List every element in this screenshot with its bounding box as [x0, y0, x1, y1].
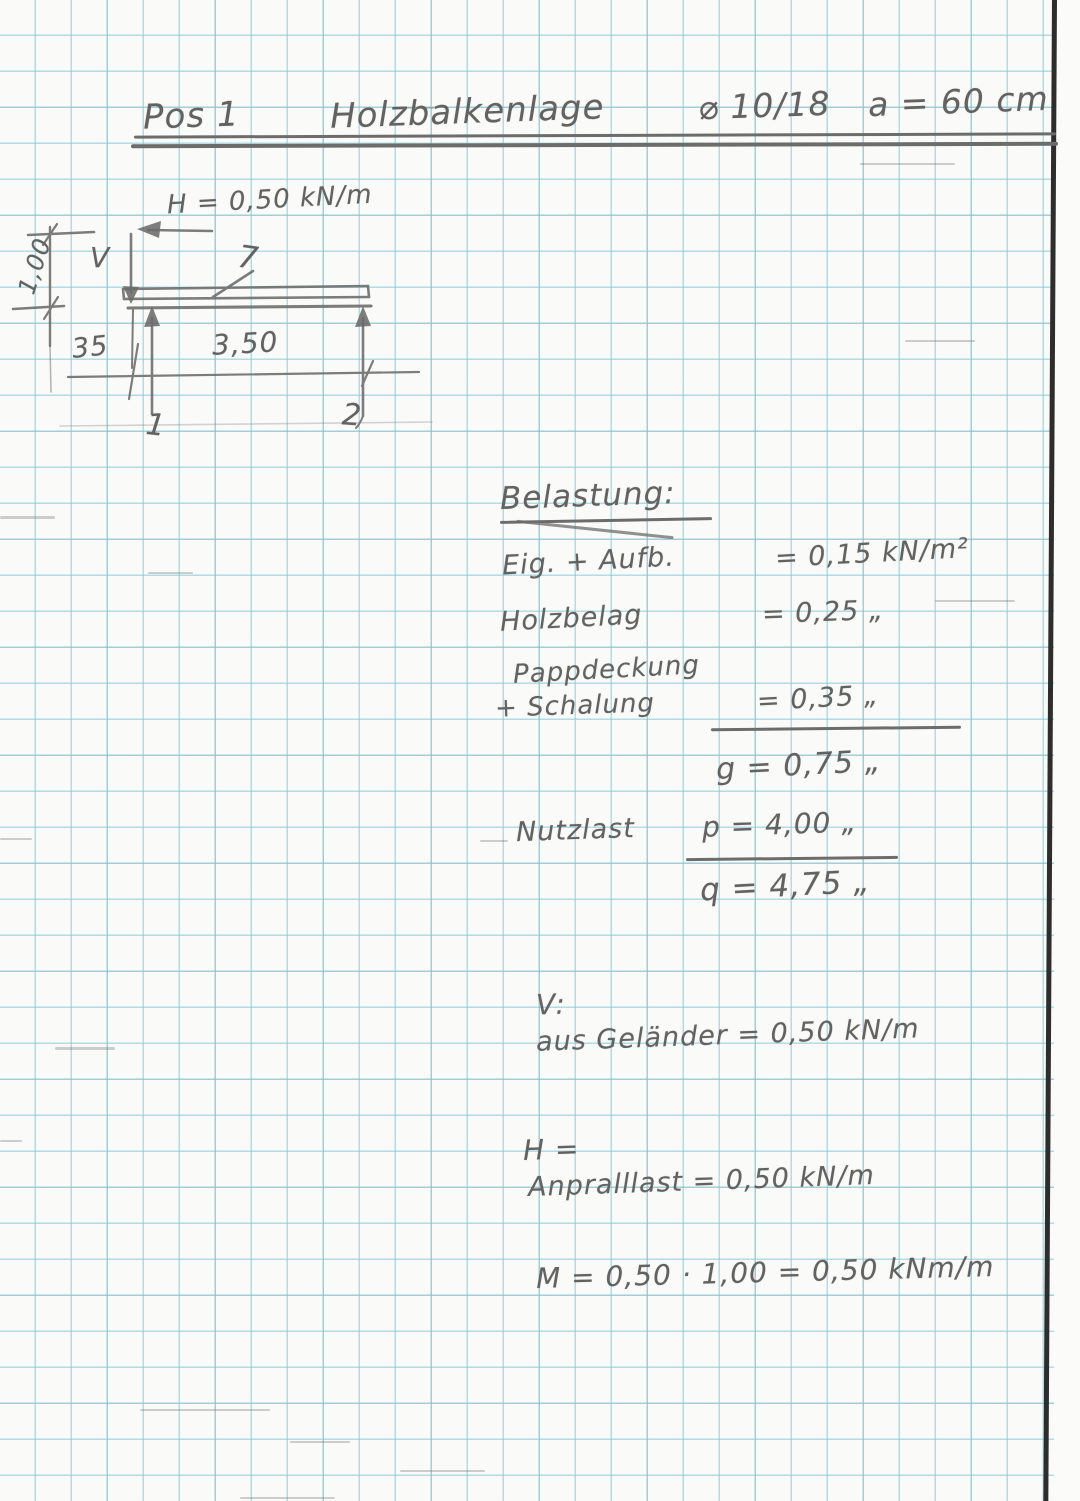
- load-row-value: = 0,25 „: [761, 595, 884, 630]
- faint-baseline: [60, 422, 432, 426]
- load-row-label: Nutzlast: [515, 813, 635, 848]
- support2-label: 2: [341, 397, 363, 433]
- v-section-heading: V:: [535, 987, 566, 1021]
- support-base-line: [128, 306, 371, 308]
- smudge: [148, 572, 193, 574]
- v-load-label: V: [90, 241, 110, 274]
- smudge: [0, 1140, 22, 1142]
- support2-arrowhead-icon: [355, 306, 371, 327]
- vertical-dim-bottom-tick: [13, 306, 64, 309]
- scan-margin: [1055, 0, 1080, 1501]
- smudge: [290, 1441, 350, 1443]
- load-row-label: + Schalung: [495, 688, 656, 724]
- smudge: [55, 1047, 115, 1050]
- load-row-value: = 0,35 „: [756, 680, 879, 717]
- beam-bottom-line: [124, 297, 369, 299]
- smudge: [400, 1470, 485, 1472]
- support1-label: 1: [144, 407, 168, 444]
- h-force-arrowhead-icon: [137, 221, 161, 238]
- dim-span-label: 3,50: [211, 325, 279, 361]
- smudge: [395, 107, 435, 109]
- dim-offset-label: 35: [70, 330, 109, 365]
- scanned-calculation-sheet: Pos 1 Holzbalkenlage ⌀ 10/18 a = 60 cm: [0, 0, 1080, 1501]
- smudge: [0, 838, 32, 840]
- loads-heading: Belastung:: [499, 475, 676, 517]
- smudge: [935, 600, 1015, 602]
- load-row-value: p = 4,00 „: [701, 805, 857, 843]
- vertical-dim-top-tick: [28, 232, 94, 235]
- h-section-heading: H =: [522, 1132, 580, 1167]
- smudge: [480, 840, 508, 842]
- beam-left-cap: [123, 289, 124, 299]
- beam-spacing: a = 60 cm: [867, 79, 1049, 124]
- beam-cross-section: ⌀ 10/18: [697, 84, 831, 128]
- dim-extension-line: [132, 309, 133, 368]
- smudge: [140, 1409, 270, 1411]
- smudge: [860, 163, 955, 165]
- v-force-arrowhead-icon: [123, 286, 139, 304]
- beam-right-cap: [368, 286, 369, 297]
- vertical-dim-ext: [50, 346, 51, 392]
- beam-top-line: [123, 286, 368, 289]
- position-number: Pos 1: [142, 94, 240, 137]
- smudge: [0, 516, 55, 519]
- dim-tick-left: [129, 344, 138, 399]
- smudge: [905, 340, 975, 342]
- smudge: [240, 1497, 335, 1499]
